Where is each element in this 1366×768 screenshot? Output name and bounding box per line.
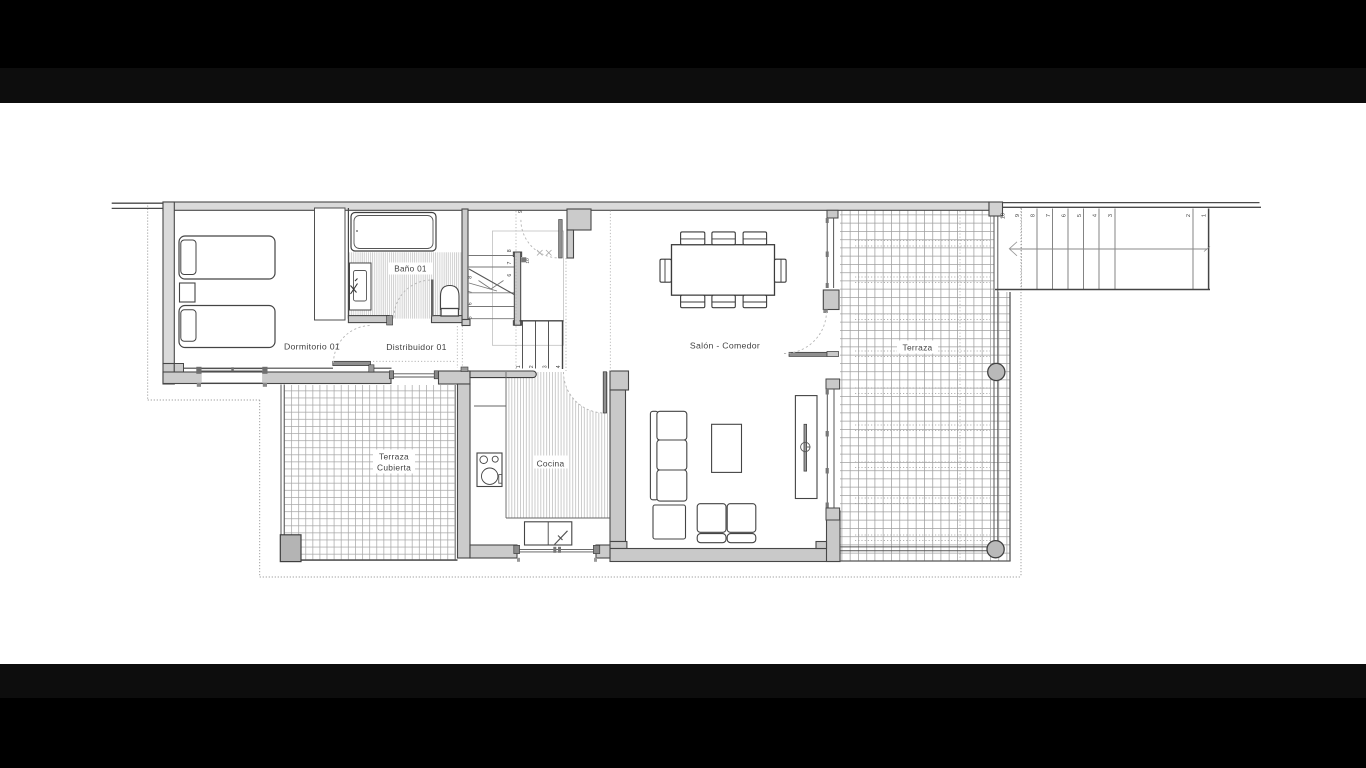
svg-text:7: 7 bbox=[507, 261, 513, 264]
svg-text:1: 1 bbox=[516, 365, 522, 368]
svg-text:6: 6 bbox=[507, 274, 513, 277]
svg-text:6: 6 bbox=[1062, 214, 1068, 217]
svg-text:9: 9 bbox=[1015, 214, 1021, 217]
svg-text:Distribuidor 01: Distribuidor 01 bbox=[386, 342, 447, 352]
svg-text:3: 3 bbox=[543, 365, 549, 368]
svg-text:5: 5 bbox=[1077, 214, 1083, 217]
svg-text:7: 7 bbox=[468, 290, 474, 293]
svg-text:Cocina: Cocina bbox=[537, 459, 565, 469]
svg-text:Baño 01: Baño 01 bbox=[394, 265, 427, 274]
svg-text:4: 4 bbox=[1093, 214, 1099, 217]
svg-text:7: 7 bbox=[1046, 214, 1052, 217]
svg-text:10: 10 bbox=[525, 258, 531, 264]
svg-text:Terraza: Terraza bbox=[902, 343, 932, 353]
svg-text:2: 2 bbox=[529, 365, 535, 368]
svg-text:9: 9 bbox=[518, 210, 524, 213]
svg-text:4: 4 bbox=[556, 365, 562, 368]
svg-text:3: 3 bbox=[1108, 214, 1114, 217]
svg-text:Cubierta: Cubierta bbox=[377, 463, 411, 473]
svg-text:8: 8 bbox=[1031, 214, 1037, 217]
svg-text:10: 10 bbox=[1001, 213, 1007, 219]
svg-text:1: 1 bbox=[1202, 214, 1208, 217]
svg-text:Terraza: Terraza bbox=[379, 452, 409, 462]
svg-text:8: 8 bbox=[507, 249, 513, 252]
svg-text:5: 5 bbox=[468, 316, 474, 319]
svg-text:8: 8 bbox=[468, 276, 474, 279]
svg-text:Salón - Comedor: Salón - Comedor bbox=[690, 341, 760, 351]
svg-text:2: 2 bbox=[1186, 214, 1192, 217]
svg-text:6: 6 bbox=[468, 302, 474, 305]
svg-text:Dormitorio 01: Dormitorio 01 bbox=[284, 342, 340, 352]
